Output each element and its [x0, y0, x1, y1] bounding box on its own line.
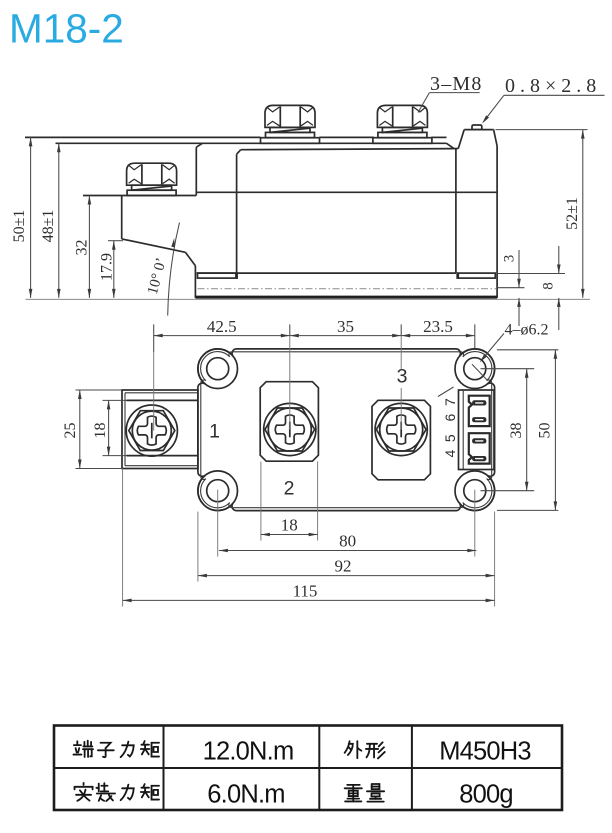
svg-text:23.5: 23.5 [423, 317, 453, 336]
svg-text:800g: 800g [459, 780, 513, 808]
svg-text:42.5: 42.5 [207, 317, 237, 336]
svg-text:115: 115 [293, 582, 318, 601]
svg-text:4: 4 [442, 449, 458, 457]
svg-text:8: 8 [541, 282, 557, 290]
svg-text:25: 25 [62, 423, 79, 439]
svg-text:6: 6 [442, 413, 458, 421]
svg-text:M450H3: M450H3 [439, 737, 531, 765]
svg-text:52±1: 52±1 [564, 197, 581, 230]
svg-text:50±1: 50±1 [11, 210, 28, 243]
svg-text:80: 80 [339, 532, 356, 551]
svg-text:2: 2 [284, 478, 295, 500]
svg-text:38: 38 [508, 423, 525, 439]
svg-text:18: 18 [281, 516, 298, 535]
svg-text:50: 50 [536, 423, 553, 439]
svg-text:4–ø6.2: 4–ø6.2 [505, 322, 549, 339]
svg-text:5: 5 [442, 434, 458, 442]
svg-text:7: 7 [442, 398, 458, 406]
svg-text:1: 1 [209, 421, 220, 443]
svg-text:M18-2: M18-2 [9, 6, 124, 52]
svg-text:92: 92 [335, 557, 352, 576]
svg-text:3: 3 [502, 255, 518, 263]
svg-text:3: 3 [397, 366, 408, 388]
svg-text:3–M8: 3–M8 [430, 73, 483, 95]
svg-text:18: 18 [92, 423, 109, 439]
svg-text:32: 32 [73, 240, 90, 256]
svg-text:48±1: 48±1 [40, 210, 57, 243]
svg-text:35: 35 [337, 317, 354, 336]
svg-text:0.8×2.8: 0.8×2.8 [505, 75, 601, 97]
svg-text:6.0N.m: 6.0N.m [207, 780, 284, 808]
svg-text:17.9: 17.9 [98, 253, 115, 281]
svg-text:12.0N.m: 12.0N.m [203, 737, 294, 765]
